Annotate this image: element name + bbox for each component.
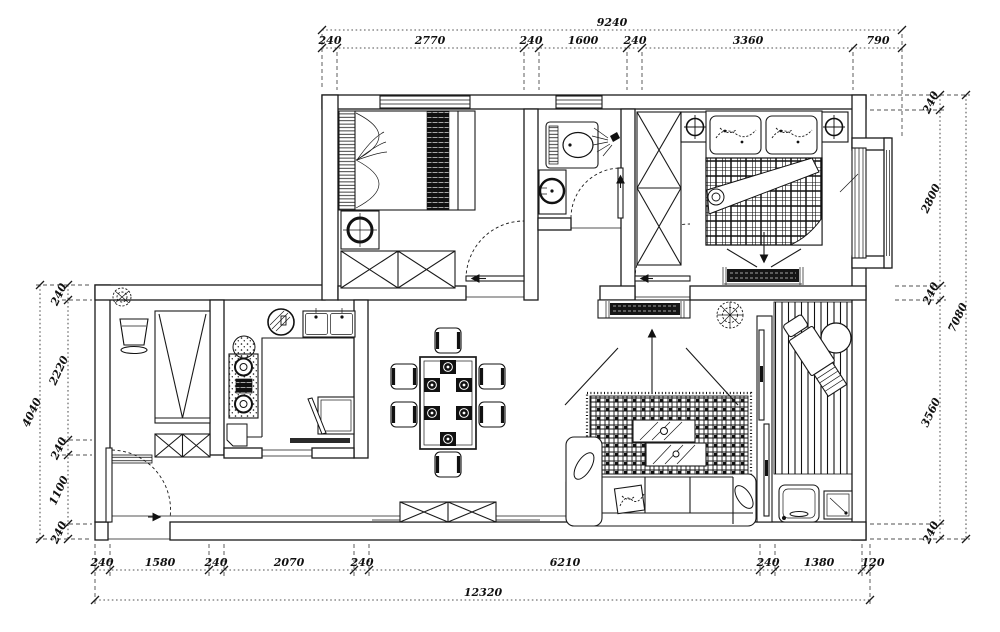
dim-right-overall: 7080 [945, 301, 970, 335]
bathroom [539, 122, 620, 214]
dim-bottom-overall: 12320 [464, 586, 503, 599]
place-setting [440, 360, 456, 374]
dim-left-seg-1: 2220 [46, 354, 71, 388]
toilet [546, 122, 598, 168]
kitchen-door-opening [262, 450, 312, 456]
dim-top-seg-5: 3360 [733, 34, 764, 47]
dim-top-seg-3: 1600 [568, 34, 599, 47]
print-pillow [614, 485, 644, 514]
dim-top-overall: 9240 [597, 16, 628, 29]
dining-chair [391, 364, 417, 389]
dining-chair [435, 328, 461, 353]
gas-stove [229, 354, 258, 418]
dim-right-seg-2: 240 [920, 280, 942, 308]
wall-clock-icon [268, 309, 294, 335]
double-bed [706, 111, 822, 245]
bathroom-sink [539, 170, 566, 214]
master-bedroom [637, 111, 848, 285]
dining-chair [391, 402, 417, 427]
dim-left-seg-2: 240 [48, 435, 70, 463]
place-setting [456, 406, 472, 420]
bedroom-second [339, 111, 475, 288]
dim-bottom-seg-8: 120 [862, 556, 885, 569]
bedroom2-door [466, 221, 524, 297]
dim-bottom-seg-4: 240 [350, 556, 374, 569]
laundry-cabinet [155, 434, 210, 457]
place-setting [456, 378, 472, 392]
window-bathroom [556, 96, 602, 108]
dim-bottom-seg-0: 240 [90, 556, 114, 569]
living-room [565, 300, 757, 526]
dim-top-seg-6: 790 [867, 34, 890, 47]
kitchen [227, 308, 355, 446]
dining-chair [479, 402, 505, 427]
floor-plan-page: 9240 240 2770 240 1600 240 3360 790 240 … [0, 0, 1000, 632]
place-setting [440, 432, 456, 446]
dim-right-seg-1: 2800 [918, 182, 943, 216]
dim-bottom-seg-1: 1580 [145, 556, 176, 569]
nightstand-lamp [341, 211, 379, 249]
washing-machine [779, 485, 819, 522]
entry-area [372, 502, 540, 522]
dim-top-seg-2: 240 [519, 34, 543, 47]
master-tv [723, 267, 803, 285]
dim-left-overall: 4040 [19, 396, 44, 430]
mop-bucket [120, 319, 148, 354]
dim-top-seg-0: 240 [318, 34, 342, 47]
dining-area [391, 328, 505, 477]
bed-single [339, 111, 475, 210]
storage-box [824, 491, 852, 519]
shoe-cabinet [372, 502, 540, 522]
dim-bottom-seg-7: 1380 [804, 556, 835, 569]
bay-window-master [840, 148, 890, 258]
drying-cabinet [155, 311, 210, 423]
master-wardrobe [637, 112, 681, 265]
dining-chair [435, 452, 461, 477]
fridge [308, 397, 354, 434]
dim-left-seg-3: 1100 [46, 474, 71, 508]
dim-left-seg-4: 240 [48, 519, 70, 547]
place-setting [424, 406, 440, 420]
wardrobe [341, 251, 455, 288]
double-sink [303, 308, 355, 337]
nightstand-lamp-left [681, 112, 709, 142]
laundry-room [113, 288, 210, 457]
dim-right-seg-4: 240 [920, 519, 942, 547]
nightstand-lamp-right [820, 112, 848, 142]
dim-bottom-seg-5: 6210 [550, 556, 581, 569]
bathroom-door [571, 168, 623, 228]
dimension-chain-left: 240 2220 240 1100 240 4040 [19, 281, 92, 547]
floor-plan-canvas: 9240 240 2770 240 1600 240 3360 790 240 … [0, 0, 1000, 632]
sliding-door [757, 316, 772, 522]
dim-bottom-seg-2: 240 [204, 556, 228, 569]
balcony [757, 302, 852, 522]
dim-bottom-seg-6: 240 [756, 556, 780, 569]
dim-bottom-seg-3: 2070 [273, 556, 305, 569]
dim-top-seg-4: 240 [623, 34, 647, 47]
window-bedroom2 [380, 96, 470, 108]
dining-chair [479, 364, 505, 389]
dimension-chain-bottom: 240 1580 240 2070 240 6210 240 1380 120 … [90, 544, 885, 604]
dim-top-seg-1: 2770 [414, 34, 446, 47]
place-setting [424, 378, 440, 392]
plant-icon-large [717, 302, 743, 328]
kitchen-mat [290, 438, 350, 443]
cutting-board [227, 424, 247, 446]
tv-niche [598, 300, 690, 318]
